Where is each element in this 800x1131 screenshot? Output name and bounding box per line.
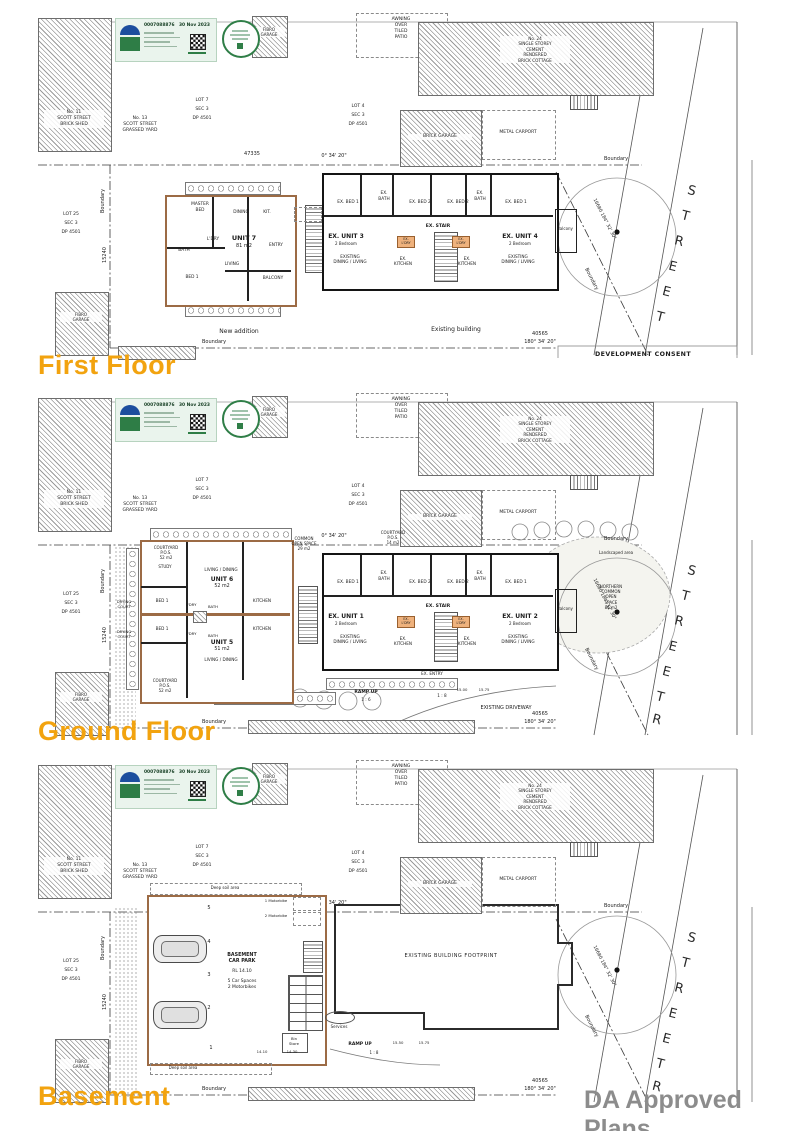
dim-bottom: 40565 xyxy=(520,1078,560,1085)
seal-text-line xyxy=(232,38,248,40)
basement-title: BASEMENT CAR PARK xyxy=(216,953,268,965)
ex-unit4-sub: 2 Bedroom xyxy=(492,241,548,246)
northern-cos-label: NORTHERN COMMON OPEN SPACE 86 m2 xyxy=(584,584,638,610)
room-balcony: BALCONY xyxy=(254,276,292,282)
basement-spaces: 5 Car Spaces 2 Motorbikes xyxy=(216,979,268,990)
ex-bed1-left: EX. BED 1 xyxy=(328,200,368,206)
certificate-text-line xyxy=(144,788,170,790)
ex-bath-right: EX. BATH xyxy=(468,191,492,202)
bearing-bottom: 180° 34' 20" xyxy=(512,1086,568,1093)
planter-top xyxy=(185,182,281,195)
drying-court-hatch xyxy=(193,611,207,623)
services-label: Services xyxy=(324,1024,354,1029)
fibro-garage-label-left: FIBRO GARAGE xyxy=(60,1059,102,1069)
boundary-left-label: Boundary xyxy=(100,560,107,602)
living-dining-upper: LIVING / DINING xyxy=(194,567,248,572)
partition xyxy=(430,555,432,595)
ex-unit2-sub: 2 Bedroom xyxy=(492,621,548,626)
motorbike1-label: 1 Motorbike xyxy=(260,899,292,904)
certificate-text-line xyxy=(144,779,174,781)
bay-number-3: 3 xyxy=(204,972,214,979)
ex-balcony-label: Balcony xyxy=(551,226,579,231)
ex-unit2-title: EX. UNIT 2 xyxy=(492,613,548,621)
living-dining-lower: LIVING / DINING xyxy=(194,657,248,662)
lot7-label: LOT 7 SEC 3 DP 4501 xyxy=(182,476,222,503)
ex-kitchen-left: EX. KITCHEN xyxy=(388,256,418,267)
partition xyxy=(430,175,432,215)
seal-text-line xyxy=(232,410,248,412)
nathers-certificate: 0007088876 30 Nov 2023 xyxy=(115,18,217,62)
ex-unit1-title: EX. UNIT 1 xyxy=(318,613,374,621)
ex-kitchen-right: EX. KITCHEN xyxy=(452,256,482,267)
parked-car xyxy=(153,935,207,963)
boundary-bottom-label: Boundary xyxy=(192,1086,236,1093)
partition xyxy=(465,175,467,215)
brick-shed-label: No. 11 SCOTT STREET BRICK SHED xyxy=(44,857,104,875)
certificate-date: 30 Nov 2023 xyxy=(179,403,210,408)
certificate-number: 0007088876 xyxy=(144,770,175,775)
certificate-text-line xyxy=(144,37,180,39)
fibro-garage-label-left: FIBRO GARAGE xyxy=(60,312,102,322)
unit7-title: UNIT 7 xyxy=(220,234,268,242)
ex-dining-left: EXISTING DINING / LIVING xyxy=(326,634,374,645)
unit5-title: UNIT 5 xyxy=(200,639,244,647)
level-1430: 14.30 xyxy=(282,1050,302,1055)
ex-unit3-sub: 2 Bedroom xyxy=(318,241,374,246)
watermark: DA Approved Plans xyxy=(584,1086,800,1131)
seal-text-line xyxy=(232,785,248,787)
ex-dining-right: EXISTING DINING / LIVING xyxy=(494,254,542,265)
partition xyxy=(465,555,467,595)
level-1550: 15.50 xyxy=(388,1041,408,1046)
bed1-lower: BED 1 xyxy=(148,626,176,631)
unit5-area: 51 m2 xyxy=(200,647,244,653)
ramp-grade8: 1 : 8 xyxy=(430,693,454,698)
fibro-garage-label-left: FIBRO GARAGE xyxy=(60,692,102,702)
level-1410: 14.10 xyxy=(252,1050,272,1055)
level-1575: 15.75 xyxy=(414,1041,434,1046)
carport-label: METAL CARPORT xyxy=(486,877,550,883)
ramp-label: RAMP UP xyxy=(346,690,386,696)
seal-text-line xyxy=(232,418,248,420)
nathers-certificate: 0007088876 30 Nov 2023 xyxy=(115,765,217,809)
ex-laundry-chip: EX. L'DRY xyxy=(397,236,415,248)
interior-wall xyxy=(141,586,186,588)
certificate-text-line xyxy=(144,784,180,786)
certificate-text-line xyxy=(144,41,170,43)
parked-car xyxy=(153,1001,207,1029)
basement-rl: RL 14.10 xyxy=(216,969,268,975)
existing-building-label: Existing building xyxy=(408,326,504,334)
boundary-bottom-label: Boundary xyxy=(192,339,236,346)
boundary-left-label: Boundary xyxy=(100,927,107,969)
kitchen-upper: KITCHEN xyxy=(244,598,280,603)
nathers-logo-arc xyxy=(120,405,140,415)
motorbike-bay xyxy=(293,897,321,911)
dim-left: 15240 xyxy=(102,238,109,272)
boundary-hatch-strip xyxy=(248,720,475,734)
storage-lockers xyxy=(288,975,323,1031)
link-bridge xyxy=(294,207,322,222)
certificate-link-line xyxy=(188,799,206,801)
party-wall xyxy=(140,613,290,616)
certificate-text-line xyxy=(144,793,177,795)
bearing-top: 0° 34' 20" xyxy=(308,153,360,160)
room-bath: BATH xyxy=(172,248,196,254)
lot4-label: LOT 4 SEC 3 DP 4501 xyxy=(336,849,380,876)
ex-dining-left: EXISTING DINING / LIVING xyxy=(326,254,374,265)
seal-text-line xyxy=(230,34,250,36)
grassed-yard-label: No. 13 SCOTT STREET GRASSED YARD xyxy=(100,116,180,134)
panel-basement: No. 11 SCOTT STREET BRICK SHED No. 13 SC… xyxy=(0,757,800,1105)
fibro-garage-hatch-left xyxy=(55,292,109,356)
dim-left: 15240 xyxy=(102,618,109,652)
cottage-steps xyxy=(570,475,598,490)
ex-unit3-title: EX. UNIT 3 xyxy=(318,233,374,241)
room-master-bed: MASTER BED xyxy=(183,202,217,213)
brick-shed-label: No. 11 SCOTT STREET BRICK SHED xyxy=(44,490,104,508)
seal-mark xyxy=(237,43,243,49)
deep-soil-bottom-label: Deep soil area xyxy=(158,1065,208,1070)
certificate-date: 30 Nov 2023 xyxy=(179,770,210,775)
lot25-label: LOT 25 SEC 3 DP 4501 xyxy=(48,957,94,984)
bath-upper: BATH xyxy=(202,605,224,610)
carport-label: METAL CARPORT xyxy=(486,510,550,516)
bay-number-2: 2 xyxy=(204,1005,214,1012)
grassed-yard-label: No. 13 SCOTT STREET GRASSED YARD xyxy=(100,863,180,881)
seal-mark xyxy=(237,790,243,796)
cottage-steps xyxy=(570,842,598,857)
brick-shed-label: No. 11 SCOTT STREET BRICK SHED xyxy=(44,110,104,128)
da-plans-sheet: No. 11 SCOTT STREET BRICK SHED No. 13 SC… xyxy=(0,0,800,1131)
nathers-certificate: 0007088876 30 Nov 2023 xyxy=(115,398,217,442)
planter-ramp xyxy=(326,678,458,690)
seal-text-line xyxy=(232,30,248,32)
ex-unit4-title: EX. UNIT 4 xyxy=(492,233,548,241)
seal-text-line xyxy=(230,414,250,416)
ex-entry-label: EX. ENTRY xyxy=(414,671,450,676)
nathers-logo-arc xyxy=(120,772,140,782)
partition xyxy=(360,555,362,595)
ex-kitchen-left: EX. KITCHEN xyxy=(388,636,418,647)
qr-code xyxy=(190,34,206,50)
ex-balcony-label: Balcony xyxy=(551,606,579,611)
room-entry: ENTRY xyxy=(263,243,289,249)
ex-stair-label: EX. STAIR xyxy=(420,224,456,230)
basement-heading: Basement xyxy=(38,1081,170,1112)
ex-bath-left: EX. BATH xyxy=(372,571,396,582)
panel-first-floor: No. 11 SCOTT STREET BRICK SHED No. 13 SC… xyxy=(0,10,800,358)
ex-unit1-sub: 2 Bedroom xyxy=(318,621,374,626)
certificate-date: 30 Nov 2023 xyxy=(179,23,210,28)
accreditation-seal xyxy=(222,767,260,805)
boundary-hatch-strip xyxy=(248,1087,475,1101)
interior-wall xyxy=(141,642,186,644)
courtyard14: COURTYARD P.O.S. 14 m2 xyxy=(368,530,418,546)
room-study: STUDY xyxy=(150,564,180,569)
ex-kitchen-right: EX. KITCHEN xyxy=(452,636,482,647)
services-tank xyxy=(325,1011,355,1024)
development-consent-label: DEVELOPMENT CONSENT xyxy=(578,351,708,359)
nathers-logo-base xyxy=(120,784,140,798)
brick-garage-label: BRICK GARAGE xyxy=(408,881,472,887)
ramp-grade6: 1 : 6 xyxy=(346,697,386,702)
cottage-label: No. 24 SINGLE STOREY CEMENT RENDERED BRI… xyxy=(500,416,570,443)
new-addition-label: New addition xyxy=(196,328,282,336)
brick-garage-label: BRICK GARAGE xyxy=(408,514,472,520)
dim-top: 47335 xyxy=(234,151,270,158)
room-kitchen: KIT. xyxy=(255,210,279,216)
boundary-top-label: Boundary xyxy=(596,903,636,910)
footprint-label: EXISTING BUILDING FOOTPRINT xyxy=(392,953,510,960)
bed1-upper: BED 1 xyxy=(148,598,176,603)
certificate-text-line xyxy=(144,412,174,414)
motorbike-bay xyxy=(293,912,321,926)
lot25-label: LOT 25 SEC 3 DP 4501 xyxy=(48,590,94,617)
ex-laundry-chip: EX. L'DRY xyxy=(397,616,415,628)
bay-number-4: 4 xyxy=(204,939,214,946)
panel-ground-floor: No. 11 SCOTT STREET BRICK SHED No. 13 SC… xyxy=(0,390,800,738)
accreditation-seal xyxy=(222,20,260,58)
ramp-grade8: 1 : 8 xyxy=(362,1050,386,1055)
unit6-area: 52 m2 xyxy=(200,584,244,590)
boundary-top-label: Boundary xyxy=(596,156,636,163)
certificate-text-line xyxy=(144,32,174,34)
certificate-text-line xyxy=(144,417,180,419)
bay-number-1: 1 xyxy=(206,1045,216,1052)
room-bed1: BED 1 xyxy=(179,275,205,281)
deep-soil-stipple xyxy=(114,907,138,1097)
cottage-label: No. 24 SINGLE STOREY CEMENT RENDERED BRI… xyxy=(500,783,570,810)
partition xyxy=(360,175,362,215)
certificate-number: 0007088876 xyxy=(144,403,175,408)
courtyard52-top: COURTYARD P.O.S. 52 m2 xyxy=(144,545,188,561)
ex-bath-right: EX. BATH xyxy=(468,571,492,582)
bearing-bottom: 180° 34' 20" xyxy=(512,719,568,726)
seal-text-line xyxy=(232,777,248,779)
basement-stair xyxy=(303,941,323,973)
lot4-label: LOT 4 SEC 3 DP 4501 xyxy=(336,482,380,509)
bearing-bottom: 180° 34' 20" xyxy=(512,339,568,346)
ex-stair-label: EX. STAIR xyxy=(420,604,456,610)
brick-garage-label: BRICK GARAGE xyxy=(408,134,472,140)
boundary-left-label: Boundary xyxy=(100,180,107,222)
lot7-label: LOT 7 SEC 3 DP 4501 xyxy=(182,843,222,870)
ex-bed1-right: EX. BED 1 xyxy=(496,200,536,206)
deep-soil-top-label: Deep soil area xyxy=(200,885,250,890)
certificate-text-line xyxy=(144,421,170,423)
corridor-wall xyxy=(324,595,553,597)
room-dining: DINING xyxy=(226,210,256,216)
certificate-text-line xyxy=(144,46,177,48)
ground-floor-heading: Ground Floor xyxy=(38,716,215,747)
nathers-logo-base xyxy=(120,417,140,431)
ex-bed1-left: EX. BED 1 xyxy=(328,580,368,586)
lot4-label: LOT 4 SEC 3 DP 4501 xyxy=(336,102,380,129)
corridor-wall xyxy=(324,215,553,217)
ex-bed1-right: EX. BED 1 xyxy=(496,580,536,586)
ex-laundry-chip: EX. L'DRY xyxy=(452,616,470,628)
first-floor-heading: First Floor xyxy=(38,350,176,381)
lot7-label: LOT 7 SEC 3 DP 4501 xyxy=(182,96,222,123)
ldry-lower: L'DRY xyxy=(180,632,202,637)
qr-code xyxy=(190,781,206,797)
drying-court-b: DRYING COURT xyxy=(110,630,138,640)
carport-label: METAL CARPORT xyxy=(486,130,550,136)
nathers-logo-base xyxy=(120,37,140,51)
ex-bed2-a: EX. BED 2 xyxy=(402,200,438,206)
unit6-title: UNIT 6 xyxy=(200,576,244,584)
certificate-number: 0007088876 xyxy=(144,23,175,28)
lot25-label: LOT 25 SEC 3 DP 4501 xyxy=(48,210,94,237)
qr-code xyxy=(190,414,206,430)
cottage-label: No. 24 SINGLE STOREY CEMENT RENDERED BRI… xyxy=(500,36,570,63)
ex-laundry-chip: EX. L'DRY xyxy=(452,236,470,248)
kitchen-lower: KITCHEN xyxy=(244,626,280,631)
driveway-label: EXISTING DRIVEWAY xyxy=(466,705,546,712)
unit7-area: 81 m2 xyxy=(220,243,268,250)
dim-bottom: 40565 xyxy=(520,711,560,718)
seal-mark xyxy=(237,423,243,429)
boundary-top-label: Boundary xyxy=(596,536,636,543)
certificate-link-line xyxy=(188,52,206,54)
room-living: LIVING xyxy=(218,262,246,268)
ex-bath-left: EX. BATH xyxy=(372,191,396,202)
courtyard52-bottom: COURTYARD P.O.S. 52 m2 xyxy=(142,678,188,694)
dim-bottom: 40565 xyxy=(520,331,560,338)
bin-store-label: Bin Store xyxy=(283,1037,305,1047)
planter-left xyxy=(126,548,139,690)
accreditation-seal xyxy=(222,400,260,438)
motorbike2-label: 2 Motorbike xyxy=(260,914,292,919)
cottage-steps xyxy=(570,95,598,110)
seal-text-line xyxy=(230,781,250,783)
ramp-level2: 15.75 xyxy=(474,688,494,693)
common-open-space: COMMON OPEN SPACE 29 m2 xyxy=(278,536,330,552)
ramp-level1: 15.00 xyxy=(452,688,472,693)
ldry-upper: L'DRY xyxy=(180,603,202,608)
grassed-yard-label: No. 13 SCOTT STREET GRASSED YARD xyxy=(100,496,180,514)
nathers-logo-arc xyxy=(120,25,140,35)
ex-dining-right: EXISTING DINING / LIVING xyxy=(494,634,542,645)
bay-number-5: 5 xyxy=(204,905,214,912)
certificate-text-line xyxy=(144,426,177,428)
landscaped-label: Landscaped area xyxy=(590,550,642,555)
dim-left: 15240 xyxy=(102,985,109,1019)
certificate-link-line xyxy=(188,432,206,434)
interior-wall xyxy=(225,270,291,272)
ex-bed2-a: EX. BED 2 xyxy=(402,580,438,586)
common-stair xyxy=(298,586,318,644)
ramp-label: RAMP UP xyxy=(340,1042,380,1048)
drying-court-a: DRYING COURT xyxy=(110,600,138,610)
